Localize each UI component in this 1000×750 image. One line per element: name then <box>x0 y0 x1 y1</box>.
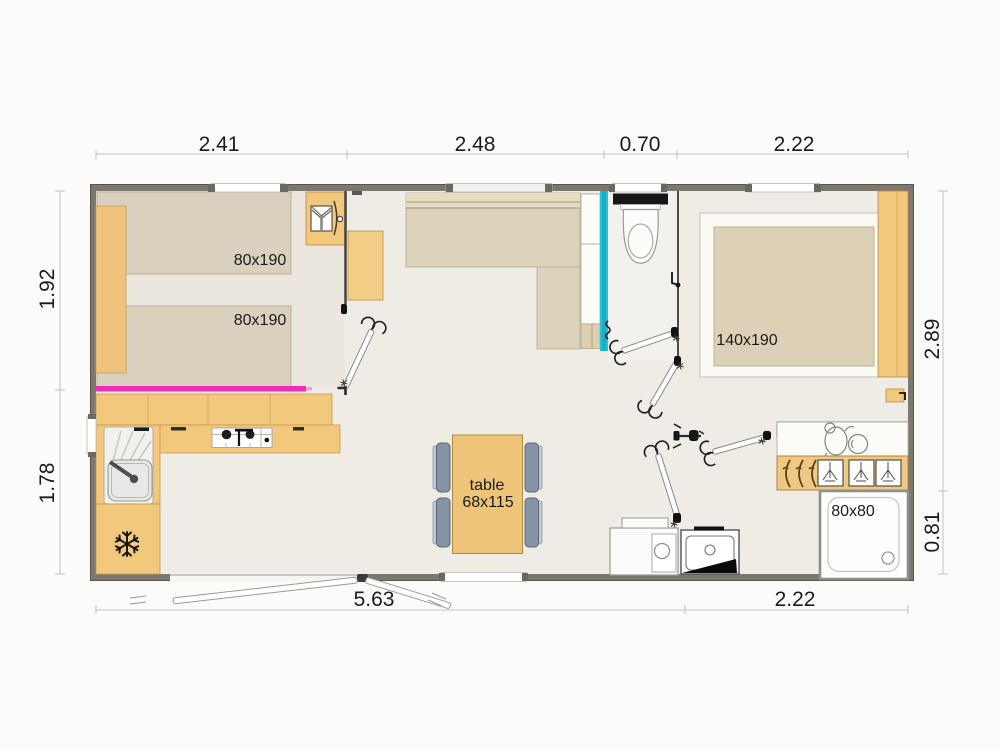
svg-text:2.41: 2.41 <box>199 133 240 156</box>
svg-text:2.22: 2.22 <box>774 133 815 156</box>
svg-text:1.92: 1.92 <box>36 269 59 310</box>
svg-text:2.22: 2.22 <box>775 588 816 611</box>
svg-text:80x80: 80x80 <box>831 503 875 520</box>
svg-text:table: table <box>470 477 505 494</box>
svg-text:140x190: 140x190 <box>716 332 777 349</box>
svg-text:2.89: 2.89 <box>921 319 944 360</box>
svg-text:0.81: 0.81 <box>921 512 944 553</box>
svg-text:0.70: 0.70 <box>620 133 661 156</box>
svg-text:2.48: 2.48 <box>455 133 496 156</box>
svg-text:80x190: 80x190 <box>234 312 287 329</box>
svg-text:80x190: 80x190 <box>234 252 287 269</box>
svg-text:1.78: 1.78 <box>36 463 59 504</box>
svg-text:68x115: 68x115 <box>462 494 513 511</box>
svg-text:5.63: 5.63 <box>354 588 395 611</box>
